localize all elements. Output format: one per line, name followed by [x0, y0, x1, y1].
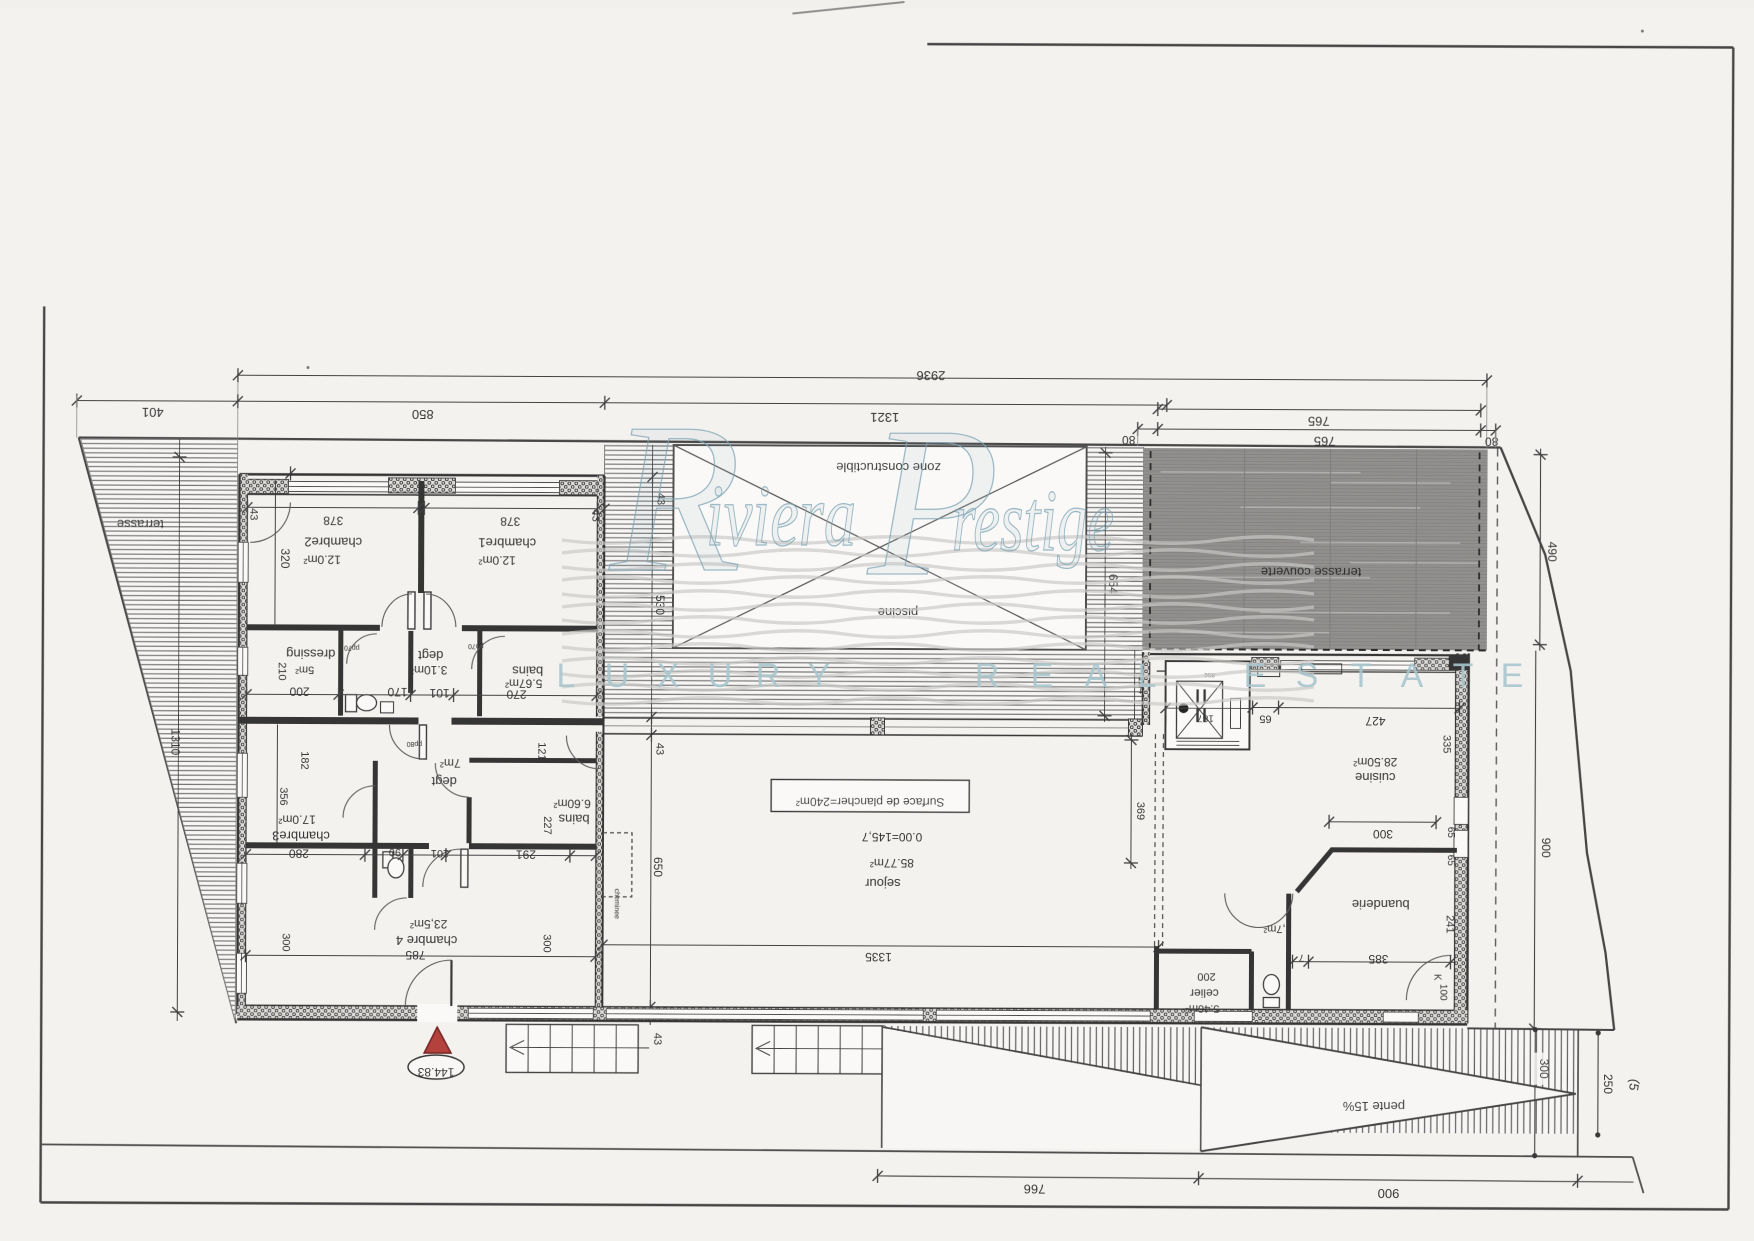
svg-text:200: 200	[289, 684, 309, 698]
svg-text:degt: degt	[418, 648, 444, 663]
svg-text:200: 200	[1197, 970, 1215, 982]
svg-text:210: 210	[276, 662, 288, 680]
svg-text:65: 65	[1259, 713, 1271, 725]
svg-text:T: T	[1351, 657, 1372, 695]
svg-text:280: 280	[289, 846, 309, 860]
svg-text:bains: bains	[512, 663, 544, 678]
svg-text:356: 356	[277, 787, 289, 805]
svg-text:401: 401	[142, 405, 164, 420]
svg-text:28.50m²: 28.50m²	[1353, 755, 1397, 769]
svg-text:7: 7	[1298, 952, 1304, 963]
svg-text:E: E	[1031, 657, 1054, 695]
svg-text:785: 785	[405, 948, 425, 962]
svg-text:1335: 1335	[865, 950, 892, 964]
svg-text:300: 300	[1373, 827, 1393, 841]
svg-text:Y: Y	[808, 657, 831, 695]
svg-text:335: 335	[1440, 735, 1452, 753]
svg-text:121: 121	[535, 742, 547, 760]
svg-text:144.83: 144.83	[417, 1065, 454, 1079]
svg-text:765: 765	[1308, 414, 1330, 429]
svg-text:378: 378	[500, 514, 520, 528]
svg-text:L: L	[557, 657, 576, 695]
svg-text:17.0m²: 17.0m²	[278, 812, 315, 826]
svg-text:chambre 4: chambre 4	[396, 933, 457, 948]
svg-text:300: 300	[541, 934, 553, 952]
svg-text:101: 101	[431, 847, 449, 859]
svg-text:U: U	[605, 657, 630, 695]
svg-text:S: S	[1296, 657, 1319, 695]
svg-text:terrasse: terrasse	[117, 517, 164, 532]
svg-text:L: L	[1138, 657, 1157, 695]
svg-text:5.46m²: 5.46m²	[1185, 1002, 1220, 1014]
svg-text:12.0m²: 12.0m²	[303, 553, 340, 567]
svg-text:pp70: pp70	[468, 642, 484, 649]
svg-text:2,7m²: 2,7m²	[1263, 923, 1292, 935]
svg-text:6.60m²: 6.60m²	[553, 797, 590, 811]
svg-text:65: 65	[1445, 827, 1456, 839]
svg-text:241: 241	[1444, 915, 1456, 933]
svg-text:2936: 2936	[916, 368, 945, 383]
svg-text:766: 766	[1024, 1182, 1046, 1197]
svg-text:427: 427	[1365, 714, 1385, 728]
svg-text:300: 300	[280, 933, 292, 951]
svg-text:850: 850	[412, 407, 434, 422]
svg-text:250: 250	[1601, 1074, 1615, 1094]
svg-text:900: 900	[1539, 838, 1553, 858]
svg-text:80: 80	[1122, 433, 1136, 447]
svg-text:pente 15%: pente 15%	[1342, 1099, 1405, 1114]
svg-text:U: U	[708, 657, 733, 695]
svg-text:100: 100	[1437, 984, 1448, 1001]
svg-text:cheminee: cheminee	[613, 889, 620, 919]
svg-text:43: 43	[589, 510, 601, 522]
svg-text:pp80: pp80	[406, 740, 422, 747]
svg-text:23,5m²: 23,5m²	[410, 917, 447, 931]
svg-text:dressing: dressing	[286, 646, 335, 661]
svg-text:5m²: 5m²	[295, 663, 314, 675]
svg-text:R: R	[756, 657, 781, 695]
svg-text:3.10m²: 3.10m²	[410, 663, 447, 677]
svg-text:chambre1: chambre1	[478, 535, 536, 550]
svg-text:E: E	[1501, 657, 1524, 695]
svg-text:12.0m²: 12.0m²	[478, 553, 515, 567]
svg-text:7m²: 7m²	[440, 756, 461, 770]
svg-text:A: A	[1401, 657, 1424, 695]
svg-text:0.00=145,7: 0.00=145,7	[861, 830, 922, 844]
svg-text:650: 650	[651, 857, 665, 877]
svg-text:iviera: iviera	[706, 468, 856, 565]
svg-text:43: 43	[247, 508, 259, 520]
svg-text:182: 182	[298, 751, 310, 769]
svg-text:43: 43	[651, 1033, 663, 1045]
svg-text:170: 170	[387, 685, 407, 699]
svg-text:765: 765	[1314, 434, 1336, 449]
svg-text:90: 90	[389, 846, 401, 858]
svg-text:900: 900	[1378, 1186, 1400, 1201]
svg-text:1310: 1310	[168, 729, 182, 756]
svg-text:A: A	[1085, 657, 1108, 695]
svg-text:378: 378	[323, 514, 343, 528]
svg-text:sejour: sejour	[864, 876, 900, 891]
svg-text:385: 385	[1368, 952, 1388, 966]
svg-text:pp70: pp70	[344, 644, 360, 651]
svg-text:270: 270	[506, 687, 526, 701]
svg-text:291: 291	[516, 847, 536, 861]
svg-text:300: 300	[1537, 1059, 1551, 1079]
svg-text:80: 80	[1485, 434, 1499, 448]
svg-text:R: R	[975, 657, 1000, 695]
svg-text:85.77m²: 85.77m²	[870, 856, 914, 870]
svg-text:Surface de plancher=240m²: Surface de plancher=240m²	[796, 795, 944, 810]
svg-text:restige: restige	[952, 473, 1114, 570]
svg-text:T: T	[1453, 657, 1474, 695]
svg-text:227: 227	[541, 816, 553, 834]
svg-text:chambre2: chambre2	[304, 535, 362, 550]
svg-text:65: 65	[1445, 855, 1456, 867]
svg-text:bains: bains	[558, 812, 590, 827]
svg-text:369: 369	[1134, 802, 1146, 820]
svg-text:490: 490	[1545, 542, 1559, 562]
svg-text:chambre3: chambre3	[272, 828, 330, 843]
svg-text:K: K	[1431, 974, 1442, 981]
svg-text:X: X	[657, 657, 680, 695]
svg-text:320: 320	[278, 548, 292, 568]
svg-text:101: 101	[429, 686, 449, 700]
svg-text:degt: degt	[431, 774, 457, 789]
svg-text:buanderie: buanderie	[1352, 897, 1410, 912]
svg-text:E: E	[1244, 657, 1267, 695]
svg-text:43: 43	[653, 743, 665, 755]
svg-text:cuisine: cuisine	[1355, 770, 1396, 785]
svg-text:celier: celier	[1190, 986, 1219, 1000]
